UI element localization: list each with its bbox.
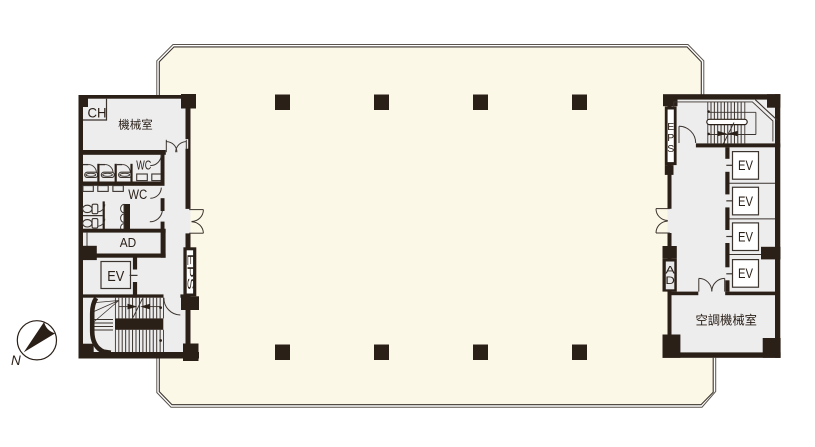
svg-text:EV: EV: [107, 269, 124, 285]
svg-text:EV: EV: [738, 158, 753, 173]
svg-text:EV: EV: [738, 230, 753, 245]
svg-text:EV: EV: [738, 266, 753, 281]
svg-text:CH: CH: [88, 104, 107, 120]
svg-text:S: S: [667, 143, 674, 155]
svg-text:AD: AD: [120, 235, 137, 250]
svg-text:空調機械室: 空調機械室: [695, 313, 757, 328]
svg-text:EPS: EPS: [186, 254, 196, 290]
svg-text:D: D: [665, 275, 675, 287]
svg-text:WC: WC: [136, 158, 151, 172]
svg-text:機械室: 機械室: [118, 117, 153, 131]
svg-text:EV: EV: [738, 194, 753, 209]
svg-text:N: N: [11, 353, 21, 368]
svg-text:WC: WC: [128, 187, 147, 202]
